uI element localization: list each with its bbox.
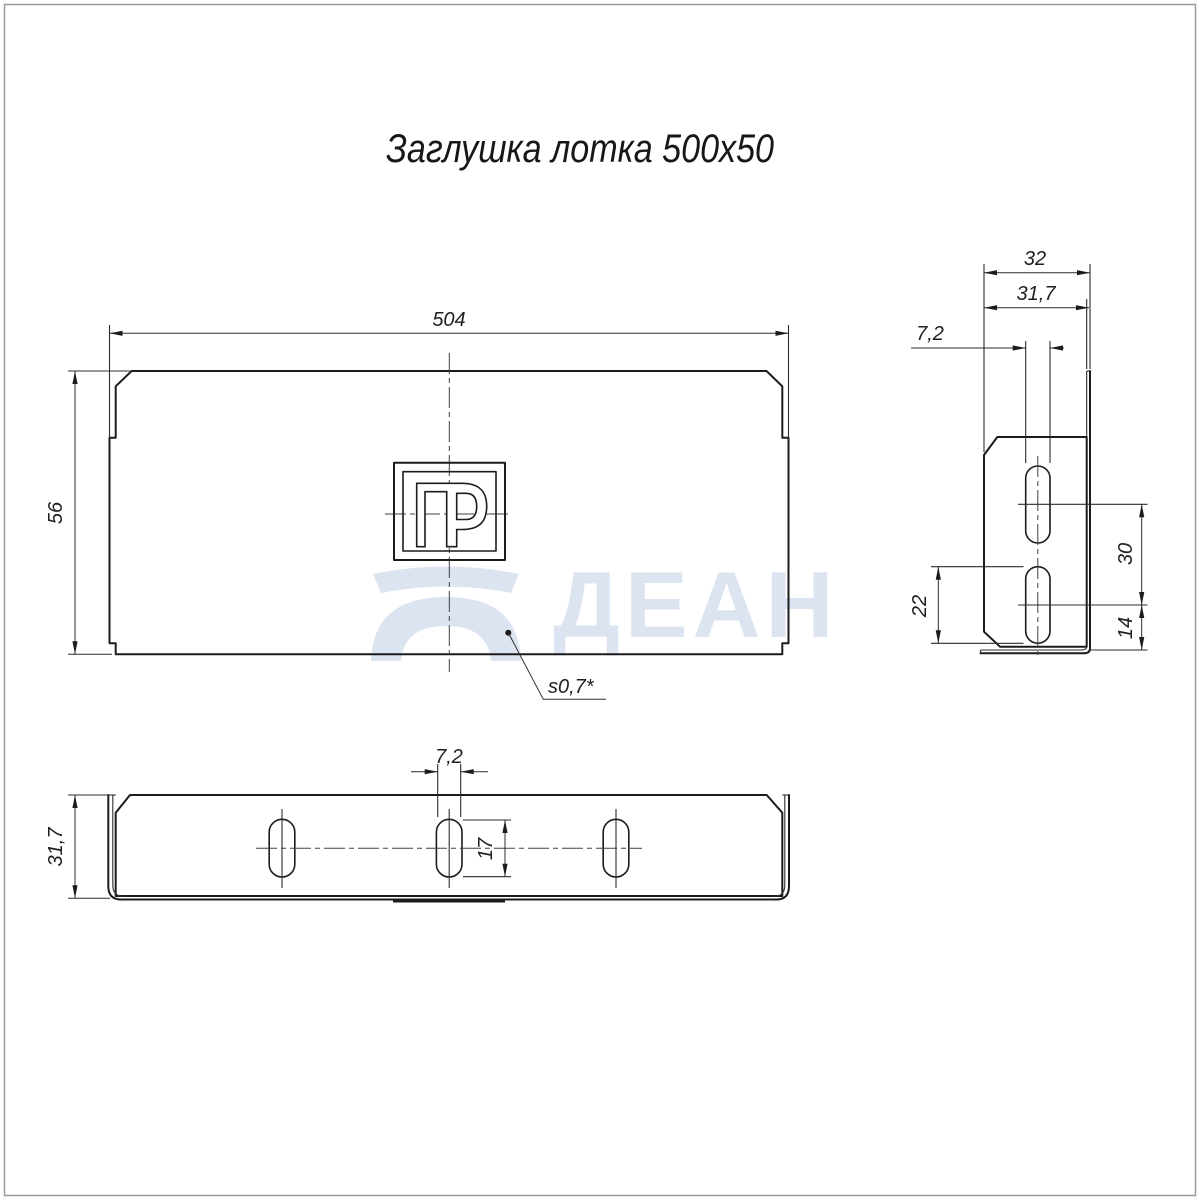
dim-side-slot-pitch: 30 — [1115, 543, 1137, 565]
dean-watermark: ДЕАН — [371, 552, 838, 661]
dim-arrow — [1013, 345, 1026, 350]
dean-logo-band — [373, 567, 519, 594]
side-depth-inner-dimension: 31,7 — [984, 283, 1089, 369]
side-flange-outline — [984, 437, 1087, 647]
dim-arrow — [1139, 637, 1144, 650]
drawing-title: Заглушка лотка 500х50 — [386, 127, 774, 171]
pr-logo-emboss — [394, 463, 505, 560]
dim-arrow — [984, 305, 997, 310]
bottom-view: 7,2 17 31,7 — [45, 746, 789, 901]
thickness-label: s0,7* — [548, 676, 595, 698]
dim-bottom-slot-length: 17 — [475, 837, 497, 860]
side-depth-outer-dimension: 32 — [984, 248, 1090, 452]
side-slot-length-dimension: 22 — [909, 567, 1024, 644]
dim-side-slot-length: 22 — [909, 595, 931, 618]
dim-arrow — [72, 371, 77, 384]
dim-front-height: 56 — [45, 501, 67, 524]
side-view: 32 31,7 7,2 — [909, 248, 1148, 655]
dim-arrow — [425, 769, 438, 774]
dim-arrow — [502, 820, 507, 833]
dim-arrow — [1139, 592, 1144, 605]
pr-logo-glyph — [417, 483, 487, 546]
dim-arrow — [1050, 345, 1063, 350]
dim-side-depth-outer: 32 — [1024, 248, 1046, 270]
front-height-dimension: 56 — [45, 371, 131, 654]
watermark-text: ДЕАН — [553, 552, 838, 657]
bottom-slot-width-dimension: 7,2 — [411, 746, 488, 817]
dim-arrow — [1077, 270, 1090, 275]
dim-side-slot-bottom: 14 — [1115, 617, 1137, 639]
dim-arrow — [461, 769, 474, 774]
dim-arrow — [110, 331, 123, 336]
dim-arrow — [776, 331, 789, 336]
dim-bottom-depth: 31,7 — [45, 827, 67, 867]
dean-logo-arch — [371, 597, 521, 661]
dim-arrow — [1139, 504, 1144, 517]
dim-arrow — [984, 270, 997, 275]
dim-arrow — [72, 641, 77, 654]
drawing-canvas: ДЕАН Заглушка лотка 500х50 504 — [0, 0, 1200, 1200]
dim-front-width: 504 — [432, 309, 465, 331]
dim-arrow — [1139, 605, 1144, 618]
dim-bottom-slot-width: 7,2 — [435, 746, 463, 768]
bottom-depth-dimension: 31,7 — [45, 795, 110, 898]
dim-side-depth-inner: 31,7 — [1017, 283, 1057, 305]
dim-arrow — [936, 630, 941, 643]
dim-arrow — [936, 567, 941, 580]
dim-arrow — [502, 864, 507, 877]
dim-arrow — [72, 795, 77, 808]
face-edge-outer — [981, 371, 1091, 653]
dim-side-slot-width: 7,2 — [916, 323, 944, 345]
side-slot-width-dimension: 7,2 — [911, 323, 1064, 463]
dim-arrow — [72, 885, 77, 898]
technical-drawing: ДЕАН Заглушка лотка 500х50 504 — [0, 0, 1200, 1200]
